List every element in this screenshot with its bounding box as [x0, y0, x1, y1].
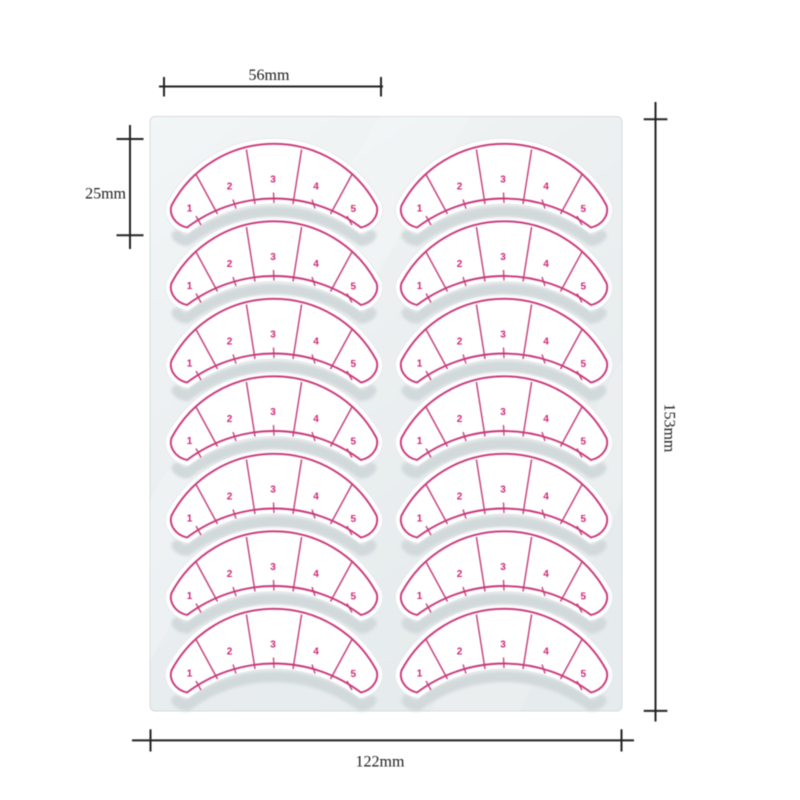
svg-text:56mm: 56mm: [249, 67, 290, 84]
svg-text:153mm: 153mm: [661, 403, 678, 452]
svg-text:25mm: 25mm: [85, 186, 126, 203]
svg-text:122mm: 122mm: [356, 754, 405, 771]
